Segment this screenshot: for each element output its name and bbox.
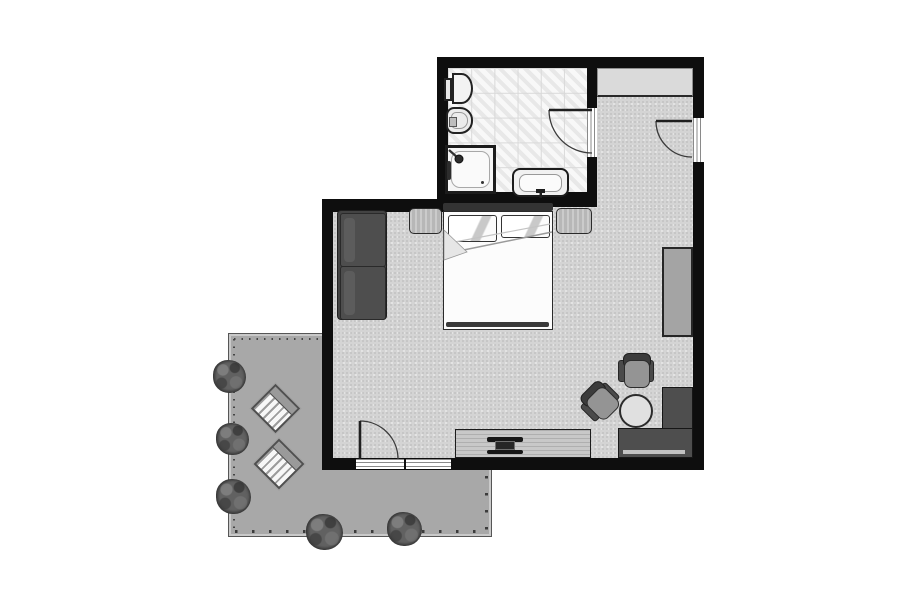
- shower-tray: [451, 151, 490, 188]
- desk-chair-icon: [618, 353, 654, 389]
- shrub-icon: [306, 514, 343, 550]
- terrace-door-threshold: [356, 459, 404, 469]
- nightstand-left: [409, 208, 442, 234]
- sofa-cushion: [340, 213, 386, 267]
- pillow: [448, 215, 497, 242]
- sink-basin: [519, 174, 562, 192]
- terrace-window: [406, 459, 451, 469]
- tv-console: [455, 429, 591, 458]
- pillow: [501, 215, 550, 238]
- shrub-icon: [213, 360, 246, 393]
- shrub-icon: [387, 512, 422, 546]
- bathroom-door-opening: [587, 108, 597, 157]
- tv-icon: [495, 441, 515, 450]
- chair-seat: [624, 360, 650, 388]
- sofa-cushion: [340, 266, 386, 320]
- wall-top: [437, 57, 704, 68]
- terrace-railing-ticks-bottom: [235, 530, 485, 533]
- shrub-icon: [216, 423, 249, 455]
- tv-icon: [487, 450, 523, 454]
- floor-plan: [0, 0, 913, 608]
- wall-left: [322, 199, 333, 470]
- sofa: [337, 210, 387, 320]
- shower-icon: [445, 145, 496, 194]
- nightstand-right: [556, 208, 592, 234]
- shower-drain: [481, 181, 485, 185]
- bidet-icon: [446, 107, 473, 134]
- toilet-tank-icon: [444, 78, 452, 101]
- wardrobe: [662, 247, 693, 337]
- shower-handle: [447, 161, 451, 180]
- desk-shelf: [623, 450, 685, 454]
- round-table-icon: [619, 394, 653, 428]
- bed-headboard: [443, 203, 553, 211]
- bed-foot-board: [446, 322, 549, 327]
- double-bed: [443, 211, 553, 330]
- entry-closet: [597, 68, 693, 97]
- entry-door-opening: [693, 118, 704, 162]
- bidet-tap: [449, 117, 457, 127]
- sink-icon: [512, 168, 569, 197]
- shrub-icon: [216, 479, 251, 514]
